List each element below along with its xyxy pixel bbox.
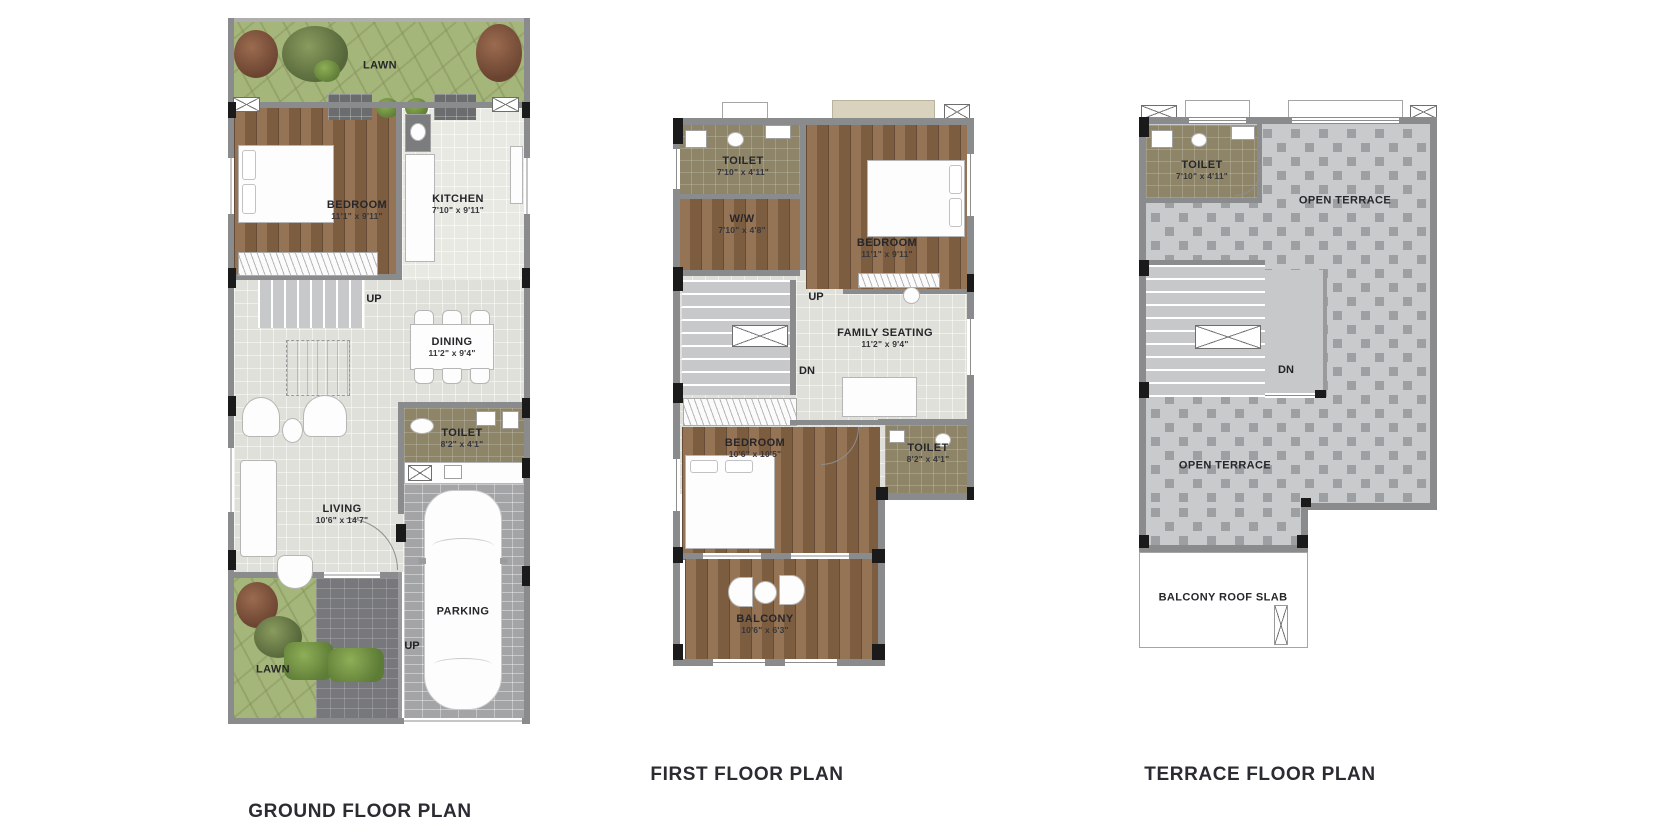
- window: [228, 448, 234, 512]
- stair-landing: [732, 325, 788, 347]
- sofa: [240, 460, 277, 557]
- open-terrace-right-label: OPEN TERRACE: [1299, 195, 1391, 208]
- ff-ww-label: W/W 7'10" x 4'8": [718, 213, 766, 235]
- column: [1139, 535, 1149, 548]
- wardrobe: [238, 252, 378, 276]
- living-dims: 10'6" x 14'7": [316, 515, 369, 525]
- toilet-label: TOILET 8'2" x 4'1": [441, 427, 484, 449]
- ff-balcony-label: BALCONY 10'6" x 6'3": [736, 613, 793, 635]
- kitchen-dims: 7'10" x 9'11": [432, 205, 484, 215]
- bedroom-name: BEDROOM: [725, 437, 785, 450]
- column: [872, 644, 885, 660]
- column: [673, 383, 683, 403]
- wall: [1139, 117, 1146, 552]
- window: [967, 319, 974, 375]
- wall: [398, 402, 404, 514]
- staircase: [258, 280, 364, 328]
- wall: [398, 572, 402, 718]
- window: [785, 659, 837, 666]
- window: [524, 158, 530, 214]
- car-rear-window: [434, 658, 492, 671]
- floor-plans-page: UP: [0, 0, 1680, 840]
- first-floor-plan: TOILET 7'10" x 4'11" W/W 7'10" x 4'8" BE…: [673, 94, 974, 666]
- toilet-sink: [889, 430, 905, 443]
- wall: [234, 102, 524, 108]
- kitchen-counter: [405, 154, 435, 262]
- window: [713, 659, 765, 666]
- column: [1297, 535, 1308, 548]
- window: [1292, 118, 1399, 123]
- stair-landing: [1195, 325, 1261, 349]
- toilet-sink: [1231, 126, 1255, 140]
- column: [228, 396, 236, 416]
- first-floor-caption: FIRST FLOOR PLAN: [650, 764, 843, 786]
- column: [967, 487, 974, 500]
- bedroom-dims: 10'6" x 10'5": [725, 449, 785, 459]
- sink-bowl: [410, 123, 426, 141]
- open-terrace-text: OPEN TERRACE: [1299, 195, 1391, 208]
- toilet-sink: [765, 125, 791, 139]
- column: [967, 274, 974, 292]
- column: [1139, 382, 1149, 398]
- car: [424, 490, 502, 710]
- balcony-chair: [728, 577, 753, 607]
- kitchen-label: KITCHEN 7'10" x 9'11": [432, 193, 484, 215]
- wall: [878, 493, 974, 500]
- pillow: [242, 184, 256, 214]
- open-terrace-main-label: OPEN TERRACE: [1179, 460, 1271, 473]
- shower-tray: [1151, 130, 1173, 148]
- stair-up-label: UP: [808, 291, 823, 303]
- column: [396, 524, 406, 542]
- toilet-name: TOILET: [441, 427, 484, 440]
- slab-mark: [1274, 605, 1288, 645]
- ff-toilet-bottom-label: TOILET 8'2" x 4'1": [907, 442, 950, 464]
- column: [673, 547, 683, 563]
- wall: [679, 194, 800, 199]
- column: [522, 268, 530, 288]
- column: [1315, 390, 1326, 398]
- window: [228, 158, 234, 214]
- open-terrace-floor: [1146, 503, 1301, 545]
- wall: [1139, 545, 1308, 552]
- wall: [790, 280, 796, 395]
- tf-toilet-label: TOILET 7'10" x 4'11": [1176, 159, 1228, 181]
- window: [791, 553, 849, 559]
- wardrobe: [858, 273, 940, 288]
- dining-dims: 11'2" x 9'4": [428, 348, 475, 358]
- parking-name: PARKING: [437, 606, 490, 619]
- dining-label: DINING 11'2" x 9'4": [428, 336, 475, 358]
- bedroom-dims: 11'1" x 9'11": [857, 249, 917, 259]
- porch-outline: [1185, 100, 1250, 118]
- ff-bedroom-top-label: BEDROOM 11'1" x 9'11": [857, 237, 917, 259]
- wall: [679, 270, 800, 276]
- stair-landing-area: [1265, 270, 1323, 397]
- window: [967, 154, 974, 216]
- stair-up-label: UP: [366, 293, 381, 305]
- balcony-roof-text: BALCONY ROOF SLAB: [1159, 592, 1288, 605]
- parking-label: PARKING: [437, 606, 490, 619]
- wall: [402, 402, 524, 408]
- wall: [673, 118, 974, 125]
- pillow: [949, 165, 962, 194]
- column: [228, 268, 236, 288]
- column: [1139, 260, 1149, 276]
- lawn-bottom-label: LAWN: [256, 664, 290, 677]
- column: [876, 487, 888, 500]
- tree: [234, 30, 278, 78]
- living-label: LIVING 10'6" x 14'7": [316, 503, 369, 525]
- wall: [800, 124, 806, 270]
- armchair: [303, 395, 347, 437]
- gate-opening: [404, 718, 522, 724]
- column: [673, 267, 683, 291]
- living-name: LIVING: [316, 503, 369, 516]
- dining-chair: [442, 368, 462, 384]
- wall: [524, 18, 530, 724]
- window: [673, 459, 680, 511]
- tree: [476, 24, 522, 82]
- ff-bedroom-bottom-label: BEDROOM 10'6" x 10'5": [725, 437, 785, 459]
- toilet-dims: 7'10" x 4'11": [717, 167, 769, 177]
- kitchen-name: KITCHEN: [432, 193, 484, 206]
- cooktop: [510, 146, 523, 204]
- vanity-sink: [444, 465, 462, 479]
- column: [228, 550, 236, 570]
- wall: [1430, 117, 1437, 510]
- ww-dims: 7'10" x 4'8": [718, 225, 766, 235]
- wall: [790, 420, 878, 425]
- hedge: [284, 642, 334, 680]
- wardrobe: [683, 398, 797, 426]
- wall: [1257, 124, 1262, 203]
- balcony-table: [754, 581, 777, 604]
- toilet-dims: 8'2" x 4'1": [441, 439, 484, 449]
- wall: [1145, 260, 1265, 265]
- roof-outline: [1288, 100, 1403, 118]
- wall: [1323, 270, 1327, 397]
- lawn-label-text: LAWN: [363, 60, 397, 73]
- car-mirror: [500, 558, 508, 564]
- washing-machine: [502, 411, 519, 429]
- toilet-name: TOILET: [907, 442, 950, 455]
- window: [703, 553, 761, 559]
- dining-name: DINING: [428, 336, 475, 349]
- balcony-name: BALCONY: [736, 613, 793, 626]
- window-xbox: [492, 97, 519, 112]
- pillow: [690, 460, 718, 473]
- double-height-void: [286, 340, 350, 396]
- toilet-dims: 8'2" x 4'1": [907, 454, 950, 464]
- column: [673, 644, 683, 660]
- dining-chair: [470, 368, 490, 384]
- ff-family-label: FAMILY SEATING 11'2" x 9'4": [837, 327, 933, 349]
- ww-name: W/W: [718, 213, 766, 226]
- column: [1139, 117, 1149, 137]
- wall: [1301, 503, 1437, 510]
- toilet-sink: [476, 411, 496, 426]
- car-windshield: [432, 538, 494, 555]
- vanity-window: [408, 465, 432, 481]
- armchair: [277, 555, 313, 589]
- bush: [314, 60, 340, 82]
- lawn-bottom-text: LAWN: [256, 664, 290, 677]
- toilet-wc: [410, 418, 434, 434]
- porch-outline: [722, 102, 768, 119]
- wall: [673, 659, 885, 666]
- column: [872, 549, 885, 563]
- toilet-dims: 7'10" x 4'11": [1176, 171, 1228, 181]
- wall: [228, 18, 530, 22]
- pillow: [725, 460, 753, 473]
- wall: [228, 18, 234, 724]
- family-name: FAMILY SEATING: [837, 327, 933, 340]
- toilet-wc: [727, 132, 744, 147]
- ground-floor-caption: GROUND FLOOR PLAN: [248, 801, 471, 823]
- seating-bench: [842, 377, 917, 417]
- window: [673, 149, 680, 189]
- wall: [878, 493, 885, 666]
- drive-up-label: UP: [404, 640, 419, 652]
- ground-floor-plan: UP: [228, 18, 530, 724]
- wall: [878, 419, 974, 425]
- stair-dn-label: DN: [1278, 364, 1294, 376]
- balcony-dims: 10'6" x 6'3": [736, 625, 793, 635]
- balcony-chair: [779, 575, 805, 605]
- door-opening: [324, 572, 380, 578]
- column: [673, 118, 683, 144]
- ff-toilet-top-label: TOILET 7'10" x 4'11": [717, 155, 769, 177]
- open-terrace-text: OPEN TERRACE: [1179, 460, 1271, 473]
- wall: [396, 108, 402, 280]
- window-xbox: [233, 97, 260, 112]
- bedroom-dims: 11'1" x 9'11": [327, 211, 387, 221]
- terrace-floor-plan: TOILET 7'10" x 4'11" OPEN TERRACE DN OPE…: [1139, 100, 1437, 650]
- toilet-name: TOILET: [1176, 159, 1228, 172]
- pillow: [949, 198, 962, 227]
- bedroom-name: BEDROOM: [857, 237, 917, 250]
- column: [522, 458, 530, 478]
- toilet-wc: [1191, 133, 1207, 147]
- bedroom-label: BEDROOM 11'1" x 9'11": [327, 199, 387, 221]
- car-mirror: [418, 558, 426, 564]
- dining-chair: [414, 368, 434, 384]
- stair-dn-label: DN: [799, 365, 815, 377]
- column: [522, 102, 530, 118]
- round-chair: [903, 287, 920, 304]
- column: [522, 398, 530, 418]
- wall: [1146, 198, 1262, 203]
- family-dims: 11'2" x 9'4": [837, 339, 933, 349]
- hedge: [328, 648, 384, 682]
- coffee-table: [282, 418, 303, 443]
- terrace-floor-caption: TERRACE FLOOR PLAN: [1144, 764, 1375, 786]
- lawn-label: LAWN: [363, 60, 397, 73]
- ff-balcony-floor: [685, 559, 878, 659]
- shower-tray: [685, 130, 707, 148]
- armchair: [242, 397, 280, 437]
- bedroom-name: BEDROOM: [327, 199, 387, 212]
- pillow: [242, 150, 256, 180]
- column: [1301, 498, 1311, 507]
- window: [1189, 118, 1246, 123]
- column: [522, 566, 530, 586]
- balcony-roof-slab-label: BALCONY ROOF SLAB: [1159, 592, 1288, 605]
- toilet-name: TOILET: [717, 155, 769, 168]
- column: [228, 102, 236, 118]
